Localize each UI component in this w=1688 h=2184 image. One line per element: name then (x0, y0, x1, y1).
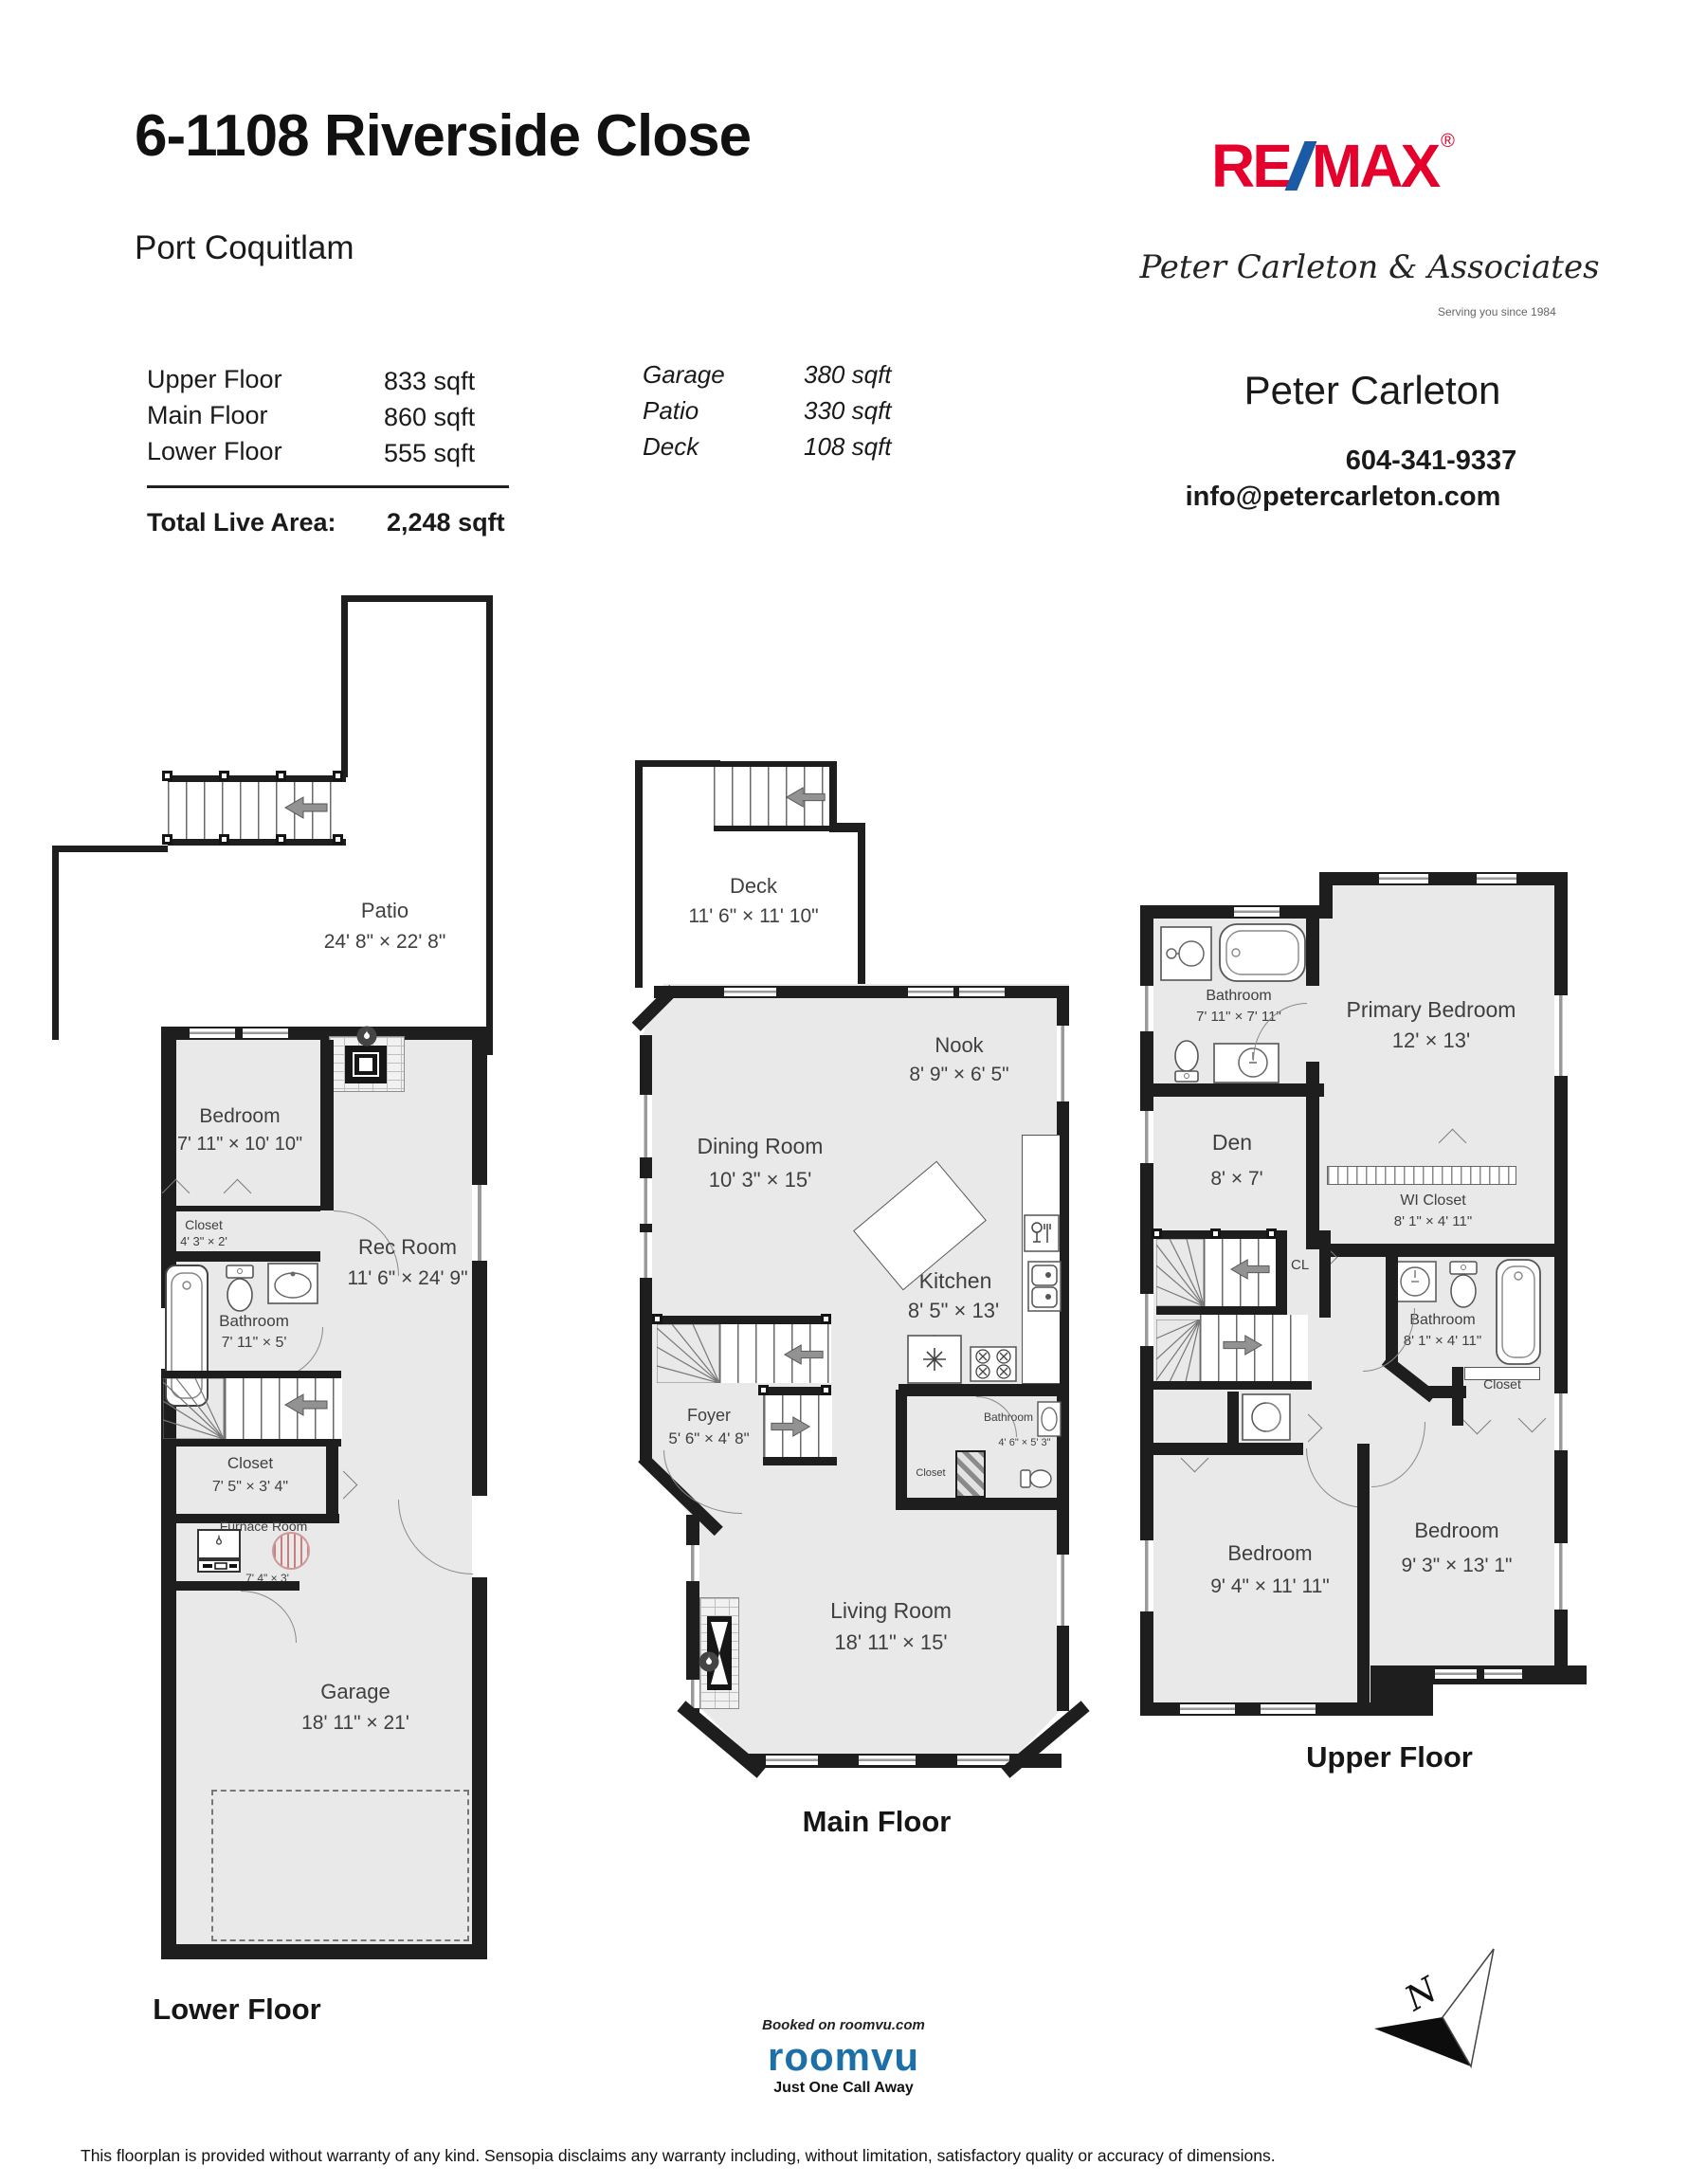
roomvu-tagline: Just One Call Away (773, 2080, 914, 2097)
wall (654, 986, 1069, 998)
stairs-arrow-icon (770, 1416, 811, 1442)
stairs-arrow-icon (785, 787, 826, 812)
room-label-living: Living Room (830, 1598, 952, 1624)
total-rule (147, 485, 509, 488)
room-dims-bedroom-left: 9' 4" × 11' 11" (1210, 1575, 1330, 1598)
room-label-closet: Closet (185, 1217, 223, 1232)
area-label-main: Main Floor (147, 401, 268, 430)
wall (1306, 1083, 1319, 1249)
room-label-dining: Dining Room (698, 1134, 824, 1159)
stair-rail (161, 1439, 341, 1447)
window (190, 1028, 235, 1038)
window (1180, 1704, 1235, 1714)
area-label-upper: Upper Floor (147, 365, 282, 394)
window (957, 1756, 1009, 1765)
closet-rod (1327, 1166, 1516, 1185)
vanity-sink-icon (1393, 1261, 1437, 1307)
floor-title-upper: Upper Floor (1306, 1740, 1473, 1774)
rail-post (276, 771, 286, 781)
room-dims-closet: 4' 3" × 2' (180, 1234, 227, 1248)
roomvu-booked: Booked on roomvu.com (762, 2017, 925, 2033)
wall (52, 846, 59, 1040)
window (959, 988, 1005, 996)
north-label: N (1398, 1970, 1445, 2020)
room-label-rec-room: Rec Room (358, 1235, 457, 1260)
signature-tagline: Serving you since 1984 (1438, 305, 1556, 318)
stairs-arrow-icon (1223, 1335, 1262, 1360)
water-tank-icon (272, 1532, 310, 1570)
door-arc (663, 1450, 742, 1514)
stair-rail (168, 839, 346, 846)
agent-phone: 604-341-9337 (1346, 446, 1517, 477)
window (1477, 874, 1516, 883)
rail-post (162, 771, 172, 781)
door-opening (472, 1496, 487, 1577)
remax-logo: RE MAX ® (1211, 131, 1455, 201)
remax-max: MAX (1312, 131, 1438, 201)
rail-post (219, 834, 229, 845)
room-label-cl: CL (1291, 1257, 1309, 1273)
room-label-closet2: Closet (227, 1454, 273, 1473)
signature: Peter Carleton & Associates (1139, 248, 1599, 286)
window (686, 1545, 699, 1581)
window (908, 988, 953, 996)
toilet-icon (224, 1265, 256, 1319)
wall (1225, 1443, 1303, 1455)
wall (1140, 1083, 1324, 1097)
remax-re: RE (1211, 131, 1290, 201)
rail-post (276, 834, 286, 845)
dishwasher-icon (1024, 1214, 1060, 1257)
area-value-upper: 833 sqft (384, 367, 475, 396)
room-dims-closet2: 7' 5" × 3' 4" (212, 1479, 288, 1496)
garage-door-outline (211, 1790, 469, 1941)
stair-rail (168, 775, 346, 782)
toilet-icon (1020, 1463, 1052, 1500)
stair-rail (1147, 1381, 1312, 1390)
stairs-arrow-icon (783, 1344, 825, 1370)
total-label: Total Live Area: (147, 508, 336, 537)
window (1554, 995, 1568, 1076)
room-label-den: Den (1212, 1130, 1252, 1156)
total-value: 2,248 sqft (387, 508, 505, 537)
kitchen-sink-icon (1027, 1261, 1062, 1317)
bathtub-icon (1496, 1259, 1541, 1370)
room-dims-kitchen: 8' 5" × 13' (908, 1299, 999, 1323)
wall (1227, 1392, 1239, 1447)
area-value-deck: 108 sqft (804, 432, 892, 462)
sink-icon (1037, 1401, 1062, 1442)
rail-post (821, 1385, 831, 1395)
window (859, 1756, 916, 1765)
agent-email: info@petercarleton.com (1186, 482, 1501, 513)
room-dims-dining: 10' 3" × 15' (709, 1168, 812, 1192)
north-arrow-icon: N (1365, 1934, 1516, 2081)
room-label-bathroom-upper2: Bathroom (1409, 1312, 1475, 1329)
window (1140, 1294, 1153, 1346)
window (1140, 986, 1153, 1031)
floor-title-lower: Lower Floor (153, 1993, 320, 2027)
wall (161, 1251, 320, 1262)
room-label-bedroom-right: Bedroom (1414, 1519, 1498, 1543)
stairs-arrow-icon (1230, 1259, 1270, 1284)
wall (1319, 872, 1568, 885)
area-label-garage: Garage (643, 360, 725, 390)
registered-mark: ® (1441, 131, 1455, 153)
stairs-winder (1156, 1315, 1200, 1386)
washer-icon (1242, 1393, 1291, 1446)
furnace-icon (197, 1529, 241, 1577)
room-dims-patio: 24' 8" × 22' 8" (324, 931, 446, 954)
window (1435, 1669, 1477, 1679)
rail-post (219, 771, 229, 781)
room-dims-foyer: 5' 6" × 4' 8" (668, 1429, 749, 1448)
wall (829, 761, 837, 831)
room-dims-primary: 12' × 13' (1392, 1028, 1470, 1053)
wall (161, 1944, 487, 1959)
wall (161, 1027, 176, 1959)
room-label-foyer: Foyer (687, 1406, 731, 1426)
window (640, 1095, 652, 1157)
window (1057, 1555, 1069, 1626)
flame-icon (699, 1651, 719, 1677)
room-label-bathroom-upper1: Bathroom (1206, 988, 1271, 1005)
fireplace-insert-icon (344, 1045, 388, 1089)
room-label-wicloset: WI Closet (1400, 1192, 1465, 1210)
hatched-closet (955, 1450, 986, 1498)
window (640, 1232, 652, 1278)
rail-post (162, 834, 172, 845)
toilet-icon (1171, 1039, 1202, 1087)
page-title: 6-1108 Riverside Close (135, 102, 751, 170)
room-label-closet-main: Closet (916, 1467, 945, 1479)
room-label-bathroom-main: Bathroom (984, 1410, 1033, 1424)
wall (52, 846, 168, 852)
wall (341, 595, 348, 777)
room-dims-bathroom-upper2: 8' 1" × 4' 11" (1404, 1333, 1481, 1349)
wall (320, 1040, 334, 1210)
window (243, 1028, 288, 1038)
room-label-kitchen: Kitchen (919, 1268, 992, 1294)
wall (176, 1206, 320, 1211)
stair-rail (657, 1316, 831, 1324)
stair-rail (1156, 1306, 1276, 1315)
kitchen-counter (1022, 1135, 1060, 1384)
room-dims-rec-room: 11' 6" × 24' 9" (347, 1267, 467, 1290)
window (1140, 1111, 1153, 1163)
wall (858, 829, 865, 988)
disclaimer: This floorplan is provided without warra… (81, 2146, 1625, 2166)
agent-name: Peter Carleton (1244, 368, 1501, 413)
wall (896, 1390, 907, 1510)
window (1554, 1393, 1568, 1450)
room-label-bedroom-left: Bedroom (1227, 1541, 1312, 1566)
wall (341, 595, 493, 602)
room-dims-nook: 8' 9" × 6' 5" (909, 1064, 1008, 1086)
wall (1319, 1230, 1331, 1318)
window (640, 1178, 652, 1224)
room-dims-den: 8' × 7' (1210, 1168, 1262, 1191)
corner-sink-icon (1160, 926, 1212, 986)
stair-rail (763, 1457, 837, 1465)
window (1140, 1540, 1153, 1611)
stairs-arrow-icon (284, 796, 328, 824)
room-label-closet-upper: Closet (1483, 1376, 1521, 1392)
wall (472, 1027, 487, 1959)
wall (898, 1384, 1069, 1396)
window (1057, 1026, 1069, 1101)
wall (1306, 905, 1319, 986)
wall (176, 1581, 299, 1591)
flame-icon (356, 1026, 377, 1051)
stairs-winder (1156, 1239, 1204, 1311)
wall (1319, 1244, 1568, 1257)
room-label-patio: Patio (361, 899, 408, 923)
wall (486, 595, 493, 1055)
stair-rail (714, 761, 831, 767)
wall (1140, 905, 1325, 919)
room-dims-deck: 11' 6" × 11' 10" (688, 905, 818, 928)
wall (635, 760, 643, 988)
stairs-winder (657, 1324, 719, 1388)
room-dims-garage: 18' 11" × 21' (301, 1712, 409, 1735)
fridge-icon (907, 1335, 962, 1389)
area-label-lower: Lower Floor (147, 437, 282, 466)
room-label-primary: Primary Bedroom (1347, 997, 1516, 1023)
floorplan-page: 6-1108 Riverside Close Port Coquitlam Up… (0, 0, 1688, 2184)
room-label-bedroom: Bedroom (199, 1105, 280, 1128)
window (1234, 907, 1280, 917)
area-value-patio: 330 sqft (804, 396, 892, 426)
stove-icon (970, 1346, 1017, 1387)
room-dims-wicloset: 8' 1" × 4' 11" (1394, 1213, 1472, 1229)
area-label-deck: Deck (643, 432, 699, 462)
area-value-main: 860 sqft (384, 403, 475, 432)
stairs-winder (163, 1378, 224, 1444)
wall (635, 760, 720, 767)
area-label-patio: Patio (643, 396, 699, 426)
sink-icon (267, 1263, 318, 1309)
wall (1306, 1062, 1319, 1083)
stair-rail (714, 826, 831, 831)
wall (1452, 1367, 1463, 1426)
city-subtitle: Port Coquitlam (135, 229, 354, 267)
rail-post (758, 1385, 769, 1395)
floor-title-main: Main Floor (803, 1805, 952, 1839)
area-value-lower: 555 sqft (384, 439, 475, 468)
rail-post (652, 1314, 662, 1324)
window (1261, 1704, 1316, 1714)
area-value-garage: 380 sqft (804, 360, 892, 390)
wall (1276, 1230, 1287, 1315)
stair-rail (161, 1371, 341, 1378)
wall (1140, 1702, 1370, 1716)
wall (1357, 1444, 1370, 1716)
room-label-deck: Deck (730, 874, 777, 899)
window (1379, 874, 1428, 883)
rail-post (1152, 1228, 1162, 1239)
rail-post (333, 771, 343, 781)
window (724, 988, 776, 996)
room-dims-living: 18' 11" × 15' (834, 1630, 947, 1655)
window (472, 1185, 487, 1261)
window (1484, 1669, 1522, 1679)
room-dims-bedroom: 7' 11" × 10' 10" (177, 1134, 302, 1156)
room-label-garage: Garage (320, 1680, 390, 1704)
room-label-nook: Nook (935, 1033, 983, 1058)
window (766, 1756, 818, 1765)
bathtub-icon (1219, 923, 1306, 987)
room-dims-bedroom-right: 9' 3" × 13' 1" (1402, 1555, 1513, 1577)
rail-post (821, 1314, 831, 1324)
roomvu-logo: roomvu (768, 2034, 919, 2080)
rail-post (333, 834, 343, 845)
window (1554, 1543, 1568, 1610)
stairs-arrow-icon (284, 1393, 328, 1421)
rail-post (1210, 1228, 1221, 1239)
toilet-icon (1446, 1261, 1480, 1315)
